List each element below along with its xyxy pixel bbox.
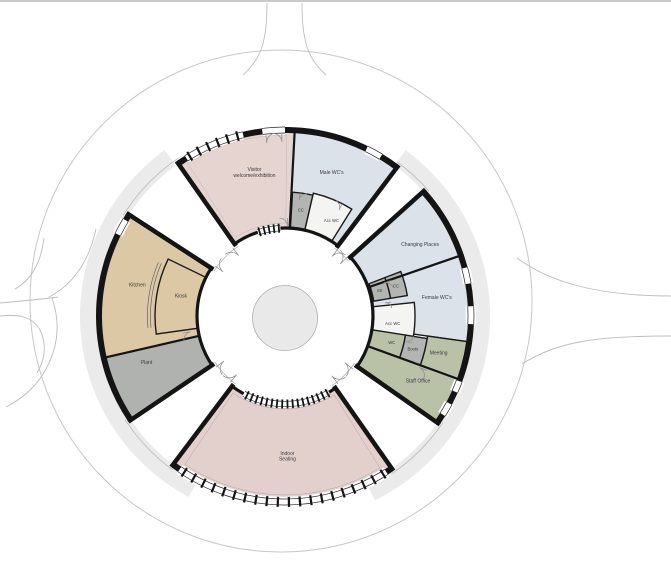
window-mullion — [279, 224, 280, 233]
top-border — [0, 0, 671, 2]
room-label-indoor_seating: IndoorSeating — [279, 451, 296, 463]
road-east-lower — [522, 336, 671, 364]
centre-circle — [253, 286, 318, 351]
centre-layer — [253, 286, 318, 351]
window-mullion — [300, 496, 301, 506]
room-label-acc_wc_right: Acc WC — [385, 321, 400, 326]
room-label-staff_office: Staff Office — [406, 379, 431, 385]
floor-plan-canvas: Visitorwelcome/exhibitionMale WC'sCCAcc … — [0, 0, 671, 575]
room-label-meeting: Meeting — [430, 351, 448, 357]
room-label-acc_wc_top: Acc WC — [324, 218, 339, 223]
room-label-changing_places: Changing Places — [401, 242, 439, 248]
window-mullion — [273, 224, 274, 233]
room-label-line: Seating — [279, 457, 296, 463]
room-label-plant: Plant — [141, 360, 153, 366]
room-label-cc_right: CC — [393, 284, 399, 289]
window-mullion — [277, 399, 278, 408]
room-label-male_wcs: Male WC's — [320, 170, 345, 176]
window-gap-outer-5 — [466, 306, 477, 324]
window-mullion — [292, 399, 293, 408]
window-mullion — [310, 495, 311, 505]
road-east-upper — [517, 258, 671, 296]
window-mullion — [255, 495, 257, 505]
room-label-line: welcome/exhibition — [233, 173, 275, 179]
room-label-boots: Boots — [407, 347, 418, 352]
room-label-female_wcs: Female WC's — [422, 295, 452, 301]
room-label-str: Str — [377, 288, 383, 293]
page: Visitorwelcome/exhibitionMale WC'sCCAcc … — [0, 0, 671, 575]
room-label-kiosk: Kiosk — [175, 294, 188, 300]
room-label-wc: WC — [388, 340, 395, 345]
window-mullion — [266, 496, 267, 506]
room-label-cc_top: CC — [298, 208, 304, 213]
room-label-kitchen: Kitchen — [129, 282, 146, 288]
